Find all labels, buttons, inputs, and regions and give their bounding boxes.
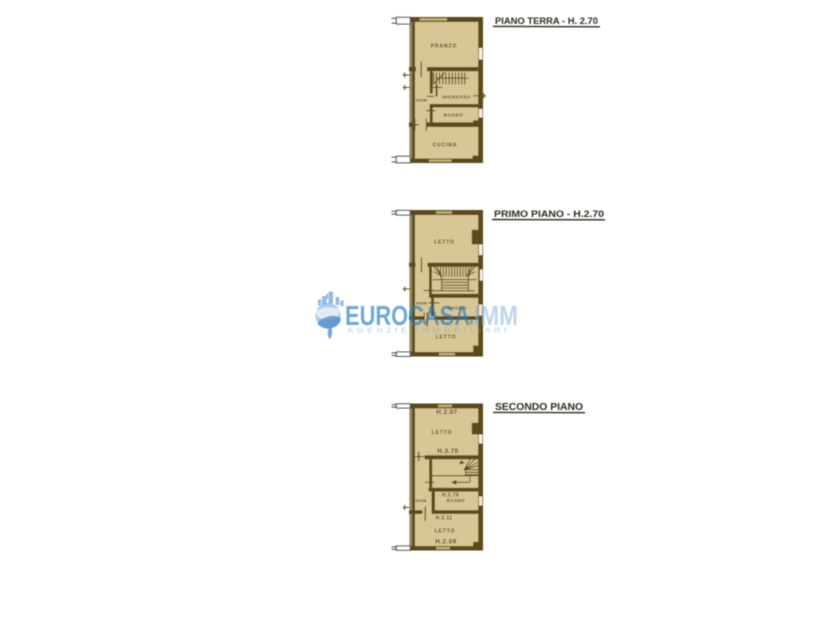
svg-text:H.2.09: H.2.09 bbox=[435, 538, 456, 545]
svg-text:PIANO TERRA - H. 2.70: PIANO TERRA - H. 2.70 bbox=[495, 16, 598, 27]
svg-text:SECONDO PIANO: SECONDO PIANO bbox=[495, 402, 583, 413]
svg-text:LETTO: LETTO bbox=[435, 529, 456, 535]
svg-text:H.3.70: H.3.70 bbox=[437, 448, 458, 455]
svg-text:INGRESSO: INGRESSO bbox=[442, 94, 471, 99]
svg-text:DISIM: DISIM bbox=[416, 499, 427, 503]
svg-text:BAGNO: BAGNO bbox=[444, 113, 464, 118]
svg-text:DISIM: DISIM bbox=[416, 99, 427, 103]
svg-text:LETTO: LETTO bbox=[436, 334, 457, 340]
svg-text:AGENZIE IMMOBILIARI: AGENZIE IMMOBILIARI bbox=[347, 325, 510, 334]
svg-text:CUCINA: CUCINA bbox=[433, 143, 458, 149]
svg-text:LETTO: LETTO bbox=[432, 430, 453, 436]
svg-text:H.3.11: H.3.11 bbox=[436, 515, 453, 521]
svg-text:H.2.07: H.2.07 bbox=[436, 409, 457, 416]
svg-text:PRIMO PIANO - H.2.70: PRIMO PIANO - H.2.70 bbox=[494, 209, 604, 220]
svg-text:PRANZO: PRANZO bbox=[431, 44, 458, 50]
svg-text:BAGNO: BAGNO bbox=[447, 498, 466, 503]
svg-text:LETTO: LETTO bbox=[434, 239, 455, 245]
